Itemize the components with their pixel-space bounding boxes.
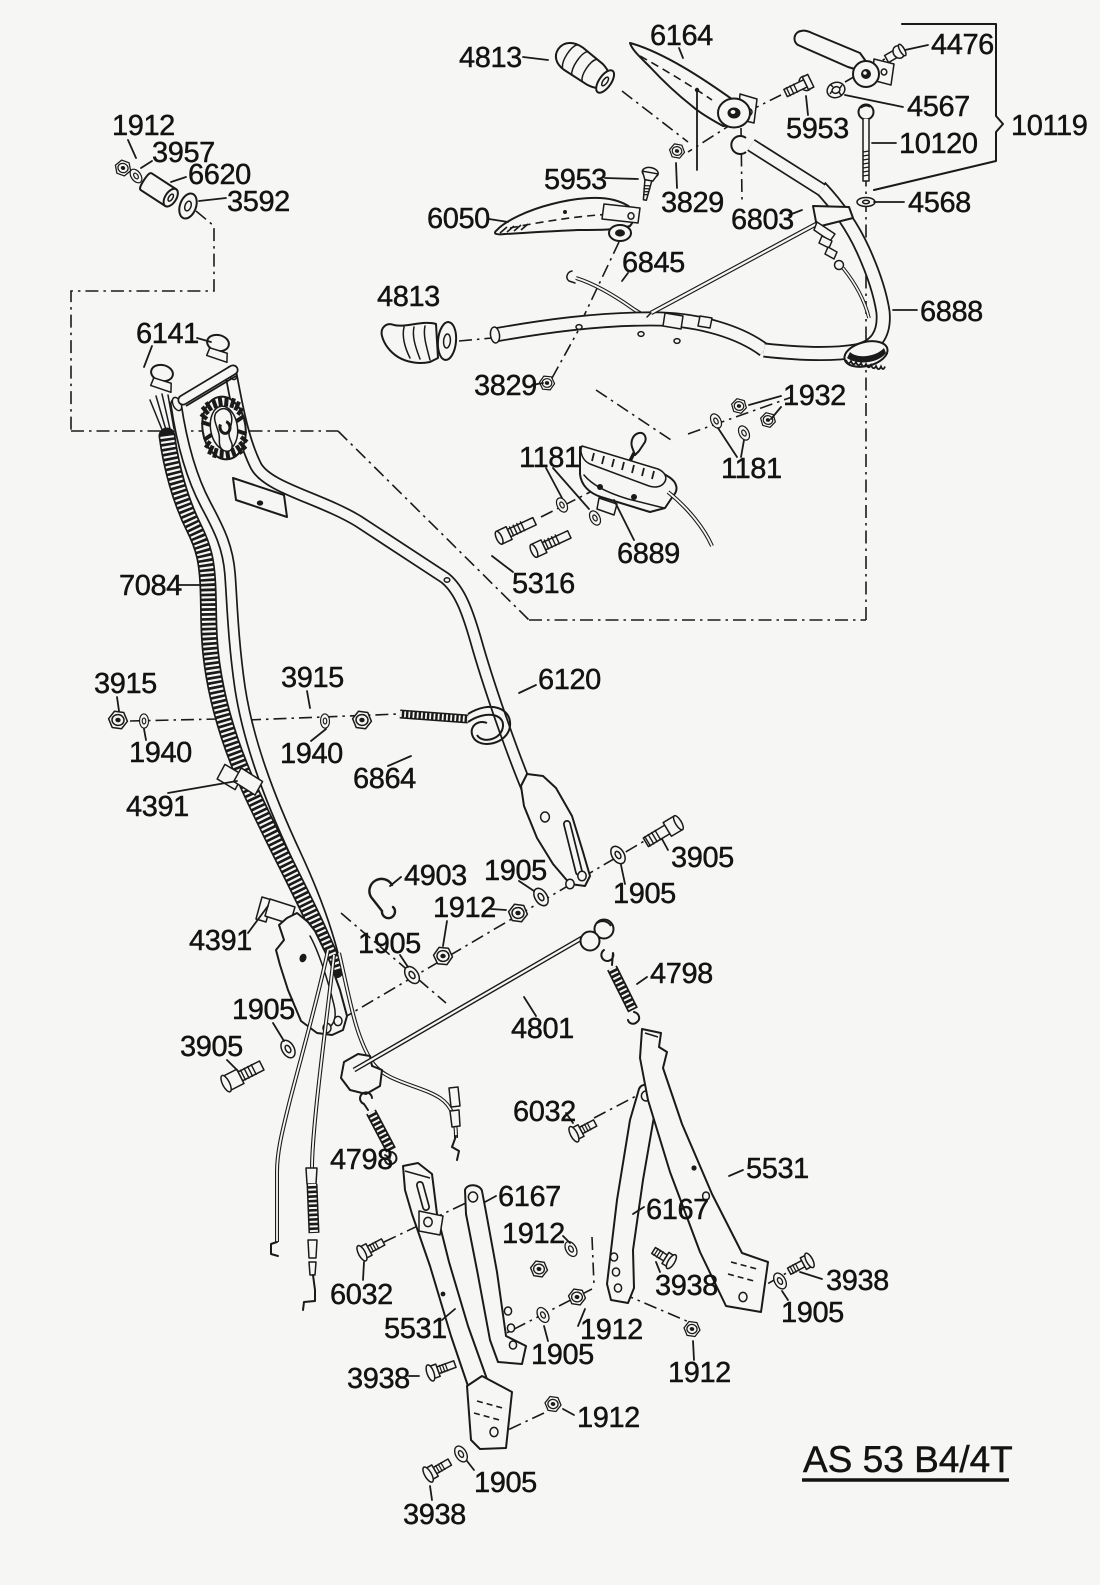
svg-text:AS 53 B4/4T: AS 53 B4/4T [803,1439,1013,1480]
svg-text:5531: 5531 [746,1153,809,1185]
svg-text:6889: 6889 [617,538,680,570]
svg-text:3938: 3938 [655,1270,718,1302]
svg-text:1912: 1912 [433,892,496,924]
svg-text:3915: 3915 [281,662,344,694]
svg-text:3829: 3829 [474,370,537,402]
svg-text:5953: 5953 [786,113,849,145]
svg-text:1912: 1912 [668,1357,731,1389]
svg-text:1940: 1940 [129,737,192,769]
svg-text:6864: 6864 [353,763,416,795]
svg-text:1912: 1912 [502,1218,565,1250]
svg-text:4476: 4476 [931,29,994,61]
svg-text:3938: 3938 [826,1265,889,1297]
svg-text:4801: 4801 [511,1013,574,1045]
svg-text:3905: 3905 [180,1031,243,1063]
svg-text:6050: 6050 [427,203,490,235]
svg-text:10119: 10119 [1011,110,1088,142]
svg-text:6164: 6164 [650,20,713,52]
svg-text:6032: 6032 [330,1279,393,1311]
svg-text:1905: 1905 [613,878,676,910]
svg-text:4798: 4798 [330,1144,393,1176]
svg-text:3905: 3905 [671,842,734,874]
svg-text:1912: 1912 [577,1402,640,1434]
svg-text:1181: 1181 [519,442,580,474]
svg-text:1905: 1905 [781,1297,844,1329]
svg-text:1940: 1940 [280,738,343,770]
svg-text:5531: 5531 [384,1313,447,1345]
svg-text:4567: 4567 [907,91,970,123]
svg-text:1905: 1905 [484,855,547,887]
svg-text:4391: 4391 [189,925,252,957]
svg-text:6032: 6032 [513,1096,576,1128]
svg-text:4813: 4813 [377,281,440,313]
svg-text:4568: 4568 [908,187,971,219]
svg-text:4903: 4903 [404,860,467,892]
svg-text:5953: 5953 [544,164,607,196]
svg-text:1905: 1905 [358,928,421,960]
svg-text:3938: 3938 [403,1499,466,1531]
svg-text:5316: 5316 [512,568,575,600]
svg-text:6888: 6888 [920,296,983,328]
svg-text:1905: 1905 [232,994,295,1026]
svg-text:1932: 1932 [783,380,846,412]
svg-text:3938: 3938 [347,1363,410,1395]
svg-text:6803: 6803 [731,204,794,236]
svg-text:6845: 6845 [622,247,685,279]
svg-text:1905: 1905 [531,1339,594,1371]
svg-text:4798: 4798 [650,958,713,990]
svg-text:7084: 7084 [119,570,182,602]
svg-text:1905: 1905 [474,1467,537,1499]
svg-text:10120: 10120 [899,128,978,160]
svg-text:1181: 1181 [721,453,782,485]
svg-text:6120: 6120 [538,664,601,696]
svg-text:6167: 6167 [498,1181,561,1213]
svg-text:6141: 6141 [136,318,199,350]
svg-text:3592: 3592 [227,186,290,218]
svg-text:3829: 3829 [661,187,724,219]
svg-text:6167: 6167 [646,1194,709,1226]
svg-text:4391: 4391 [126,791,189,823]
svg-text:3915: 3915 [94,668,157,700]
svg-text:4813: 4813 [459,42,522,74]
